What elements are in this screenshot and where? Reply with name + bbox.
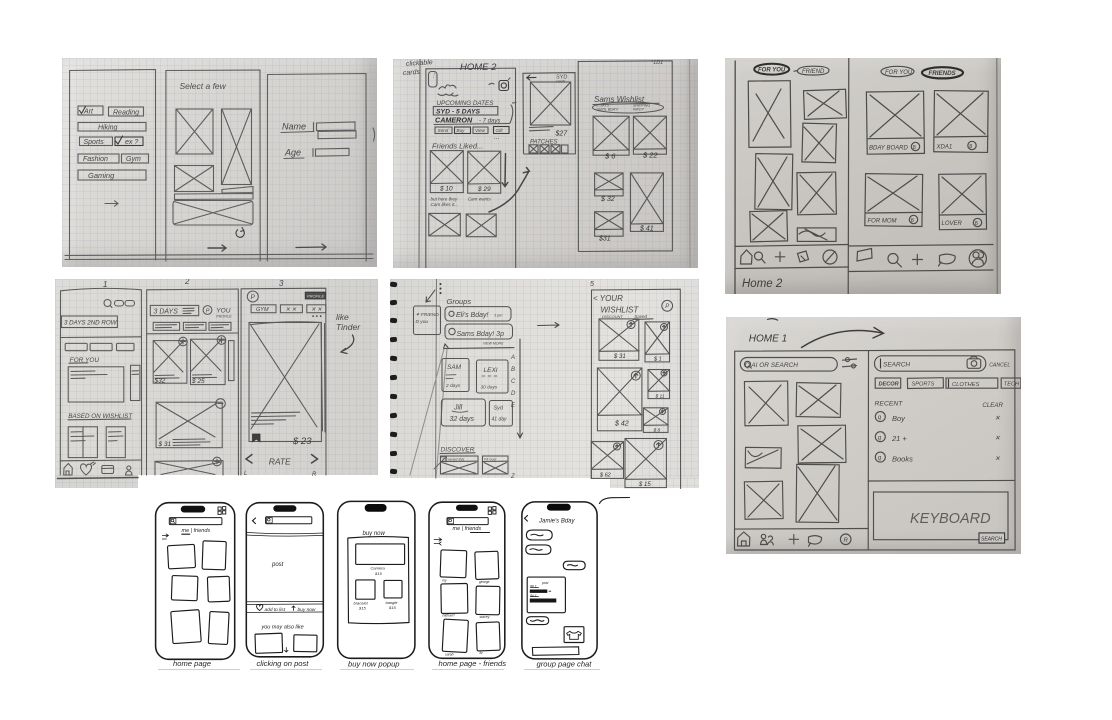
svg-text:post: post: [541, 581, 549, 585]
svg-text:DISCOUNT: DISCOUNT: [602, 314, 623, 319]
svg-text:Camera: Camera: [371, 566, 386, 571]
svg-text:$# 1: $# 1: [529, 594, 537, 598]
svg-text:$31: $31: [598, 236, 611, 243]
svg-text:✶ FRIEND: ✶ FRIEND: [416, 312, 440, 318]
svg-text:$ 6: $ 6: [604, 152, 616, 161]
svg-text:nathan?: nathan?: [443, 614, 455, 618]
svg-text:Fashion: Fashion: [83, 156, 108, 163]
svg-text:buy now popup: buy now popup: [348, 660, 400, 669]
svg-text:liz: liz: [480, 651, 484, 655]
svg-text:Send: Send: [438, 128, 449, 133]
svg-text:Cam likes it...: Cam likes it...: [431, 202, 459, 207]
svg-text:2 days: 2 days: [445, 383, 461, 389]
svg-text:✕ ✕: ✕ ✕: [311, 307, 322, 313]
svg-text:$ 42: $ 42: [614, 421, 629, 428]
svg-text:2: 2: [184, 279, 190, 286]
svg-text:$27: $27: [555, 131, 569, 138]
svg-text:Tinder: Tinder: [336, 322, 361, 332]
svg-text:SPORTS: SPORTS: [912, 382, 935, 388]
svg-text:P: P: [251, 294, 256, 301]
svg-text:$ 15: $ 15: [638, 482, 651, 488]
svg-text:$ 41: $ 41: [639, 226, 654, 233]
svg-text:Boy: Boy: [892, 414, 906, 423]
svg-text:Jill: Jill: [453, 405, 463, 412]
svg-text:BDAY BOARD: BDAY BOARD: [869, 146, 908, 152]
svg-text:SAM: SAM: [447, 364, 462, 371]
svg-text:Jamie's Bday: Jamie's Bday: [538, 519, 575, 525]
svg-text:Buy: Buy: [457, 128, 466, 133]
svg-text:C: C: [511, 379, 516, 385]
svg-text:Hiking: Hiking: [98, 125, 118, 132]
svg-text:FOR YOU: FOR YOU: [758, 68, 786, 74]
svg-text:Gym: Gym: [126, 156, 141, 163]
svg-text:clickable: clickable: [406, 59, 433, 68]
svg-text:VIEW MORE: VIEW MORE: [483, 342, 504, 346]
svg-text:Reading: Reading: [113, 110, 139, 117]
svg-text:BASED ON WISHLIST: BASED ON WISHLIST: [68, 413, 133, 420]
svg-text:Home 2: Home 2: [742, 278, 783, 290]
svg-text:$ 11: $ 11: [655, 394, 665, 400]
svg-text:FRIENDS: FRIENDS: [929, 70, 957, 77]
svg-text:george: george: [479, 580, 490, 584]
svg-text:Syd: Syd: [494, 406, 504, 412]
svg-text:$ 31: $ 31: [158, 441, 172, 448]
svg-text:$ 25: $ 25: [191, 378, 205, 385]
svg-text:Saved: Saved: [634, 314, 647, 319]
svg-text:HOME 2: HOME 2: [460, 62, 497, 73]
svg-text:you may also like: you may also like: [261, 625, 304, 631]
svg-text:- 7 days: - 7 days: [479, 119, 500, 125]
svg-text:L: L: [244, 471, 247, 477]
svg-text:GYM: GYM: [256, 307, 269, 313]
svg-text:⋮: ⋮: [431, 72, 437, 79]
svg-text:cards: cards: [403, 69, 421, 77]
svg-text:View: View: [475, 128, 486, 133]
svg-text:Eli's Bday!: Eli's Bday!: [456, 312, 489, 319]
svg-text:buy now: buy now: [298, 607, 316, 613]
svg-text:$ 10: $ 10: [439, 186, 453, 193]
svg-text:FOR YOU: FOR YOU: [885, 70, 913, 76]
svg-text:Gift: Gift: [496, 128, 504, 133]
svg-text:$ 29: $ 29: [477, 186, 491, 193]
svg-text:clicking on post: clicking on post: [257, 659, 310, 668]
svg-text:B: B: [511, 367, 515, 373]
svg-text:Sams Bday! 3p: Sams Bday! 3p: [457, 331, 505, 338]
svg-text:Cam wants: Cam wants: [468, 197, 492, 202]
svg-text:FRIEND: FRIEND: [802, 69, 825, 75]
svg-text:3: 3: [279, 279, 284, 288]
svg-text:FOR YOU: FOR YOU: [70, 357, 100, 364]
svg-text:R: R: [844, 538, 849, 544]
svg-text:P: P: [665, 304, 669, 310]
svg-text:3 DAYS: 3 DAYS: [154, 308, 179, 315]
svg-text:• • •: • • •: [312, 315, 322, 321]
svg-text:post: post: [271, 562, 284, 568]
svg-text:CLOTHES: CLOTHES: [952, 382, 980, 388]
svg-text:SYD - 5 DAYS: SYD - 5 DAYS: [436, 109, 481, 116]
svg-text:Art: Art: [83, 109, 94, 116]
svg-text:q: q: [878, 456, 882, 462]
svg-text:32 days: 32 days: [450, 416, 475, 423]
svg-text:UNTIL BDAY!: UNTIL BDAY!: [597, 108, 619, 112]
svg-text:21 saved this: 21 saved this: [441, 458, 464, 462]
svg-text:8: 8: [969, 144, 972, 150]
svg-text:21 +: 21 +: [891, 434, 907, 443]
svg-text:Q AI OR SEARCH: Q AI OR SEARCH: [745, 362, 799, 369]
svg-text:CLEAR: CLEAR: [982, 402, 1003, 409]
svg-text:q: q: [878, 415, 882, 421]
svg-text:✕ ✕: ✕ ✕: [286, 307, 297, 313]
svg-text:$15: $15: [388, 605, 396, 610]
svg-text:Name: Name: [282, 122, 306, 132]
svg-text:add to list: add to list: [265, 607, 286, 613]
svg-text:D you: D you: [416, 319, 429, 325]
svg-text:HOME 1: HOME 1: [749, 334, 787, 345]
svg-text:PROFILE: PROFILE: [307, 293, 324, 298]
svg-text:✕: ✕: [995, 415, 1001, 422]
svg-text:CAMERON: CAMERON: [435, 116, 473, 125]
svg-text:cards: cards: [556, 80, 565, 84]
svg-text:stacey: stacey: [480, 615, 490, 619]
svg-text:3 DAYS 2ND ROW: 3 DAYS 2ND ROW: [64, 320, 118, 327]
svg-text:Gaming: Gaming: [88, 171, 115, 180]
svg-text:3 pm: 3 pm: [494, 314, 502, 318]
svg-text:group page chat: group page chat: [537, 660, 593, 669]
svg-text:✕: ✕: [995, 456, 1001, 463]
svg-text:YOU: YOU: [216, 307, 230, 314]
svg-text:Fit over: Fit over: [484, 458, 497, 462]
svg-text:Sports: Sports: [84, 139, 105, 146]
svg-text:$# 1: $# 1: [529, 585, 537, 589]
svg-text:$ 8: $ 8: [653, 428, 661, 434]
svg-text:FOR MOM: FOR MOM: [868, 219, 897, 225]
svg-text:Age: Age: [284, 148, 301, 158]
svg-text:LOVER: LOVER: [942, 221, 963, 227]
svg-text:Z: Z: [510, 474, 515, 480]
svg-text:41 day: 41 day: [492, 417, 508, 423]
svg-text:SEARCH: SEARCH: [981, 536, 1002, 542]
svg-text:home page - friends: home page - friends: [439, 659, 507, 668]
svg-text:XDA1: XDA1: [936, 145, 953, 151]
svg-text:like: like: [336, 312, 349, 322]
svg-text:$15: $15: [358, 606, 366, 611]
svg-text:30 days: 30 days: [481, 385, 498, 391]
svg-text:Groups: Groups: [447, 297, 472, 306]
svg-text:5: 5: [590, 281, 594, 288]
svg-text:8: 8: [975, 221, 978, 227]
svg-text:$ 1: $ 1: [653, 357, 662, 363]
svg-text:$ 31: $ 31: [613, 354, 626, 360]
svg-text:$ 32: $ 32: [600, 196, 615, 203]
svg-text:A: A: [510, 355, 515, 361]
svg-text:LEXI: LEXI: [484, 367, 498, 374]
svg-text:home page: home page: [173, 659, 211, 668]
svg-text:*1D1: *1D1: [651, 60, 663, 66]
svg-text:DECOR: DECOR: [879, 382, 899, 388]
svg-text:PATCHES: PATCHES: [530, 139, 557, 145]
svg-text:Select a few: Select a few: [180, 81, 227, 91]
svg-text:E: E: [511, 403, 516, 409]
svg-text:sarah: sarah: [445, 653, 454, 657]
svg-text:UPCOMING DATES: UPCOMING DATES: [437, 100, 495, 107]
svg-text:$ 62: $ 62: [599, 473, 611, 479]
svg-text:RATE: RATE: [269, 457, 291, 467]
svg-text:buy now: buy now: [363, 531, 386, 537]
svg-text:INFO?: INFO?: [633, 108, 644, 112]
svg-text:ex ?: ex ?: [125, 139, 138, 146]
svg-text:Friends Liked...: Friends Liked...: [432, 142, 483, 151]
svg-text:1: 1: [103, 280, 107, 289]
svg-text:$32: $32: [154, 378, 166, 385]
svg-text:8: 8: [911, 218, 914, 224]
svg-text:8: 8: [913, 145, 916, 151]
svg-text:R: R: [312, 472, 317, 478]
svg-text:KEYBOARD: KEYBOARD: [910, 511, 991, 527]
svg-text:$ 23: $ 23: [292, 436, 312, 447]
svg-text:✕: ✕: [995, 435, 1001, 442]
svg-text:P: P: [206, 309, 210, 315]
svg-text:< YOUR: < YOUR: [593, 294, 623, 303]
svg-text:my: my: [442, 579, 447, 583]
svg-text:...: ...: [494, 134, 500, 141]
svg-text:TECH: TECH: [1004, 382, 1020, 388]
svg-text:$15: $15: [374, 571, 382, 576]
svg-text:me | friends: me | friends: [182, 528, 211, 534]
svg-text:$ 22: $ 22: [642, 151, 658, 160]
svg-text:CANCEL: CANCEL: [989, 363, 1010, 369]
svg-text:PROFILE: PROFILE: [216, 315, 232, 319]
svg-text:me | friends: me | friends: [453, 526, 482, 532]
svg-text:q: q: [878, 435, 882, 441]
svg-text:Books: Books: [892, 454, 913, 463]
svg-text:but here they: but here they: [431, 197, 459, 202]
svg-text:DISCOVER: DISCOVER: [441, 447, 475, 454]
svg-text:SEARCH: SEARCH: [883, 362, 910, 369]
svg-text:D: D: [511, 391, 516, 397]
svg-text:RECENT: RECENT: [875, 401, 904, 408]
